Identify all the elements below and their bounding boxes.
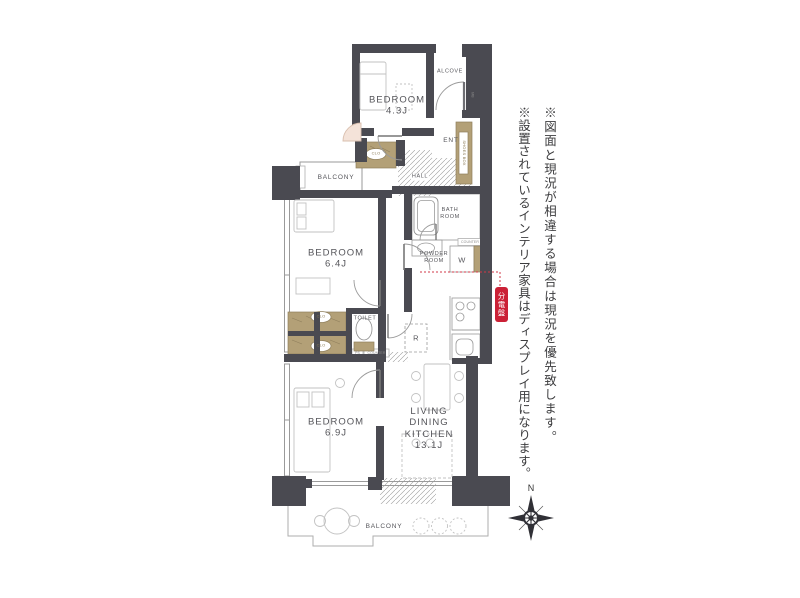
ldk-l2: DINING (405, 418, 454, 429)
bedroom-mid-name: BEDROOM (308, 248, 364, 259)
bathroom-l2: ROOM (440, 214, 460, 221)
closet-upper-label: CLO (317, 315, 326, 320)
counter-label-bottom: COUNTER (367, 351, 385, 355)
bedroom-low-name: BEDROOM (308, 417, 364, 428)
washer-label: W (458, 255, 465, 264)
closet-lower-label: CLO (317, 344, 326, 349)
powder-room-label: POWDER ROOM (420, 251, 448, 265)
compass-north-label: N (528, 483, 535, 493)
alcove-label: ALCOVE (437, 69, 463, 76)
closet-top-label: CLO (372, 152, 381, 157)
shoes-box-label: SHOES BOX (461, 140, 466, 165)
ldk-l3: KITCHEN (405, 429, 454, 440)
bedroom-top-size: 4.3J (369, 106, 425, 117)
bedroom-mid-label: BEDROOM 6.4J (308, 248, 364, 271)
balcony-bottom-label: BALCONY (366, 523, 403, 531)
bathroom-l1: BATH (440, 207, 460, 214)
bathroom-label: BATH ROOM (440, 207, 460, 221)
bedroom-top-name: BEDROOM (369, 95, 425, 106)
meter-box-label: MB (470, 92, 474, 97)
toilet-label: TOILET (354, 315, 377, 322)
disclaimer-2: ※設置されているインテリア家具はディスプレイ用になります。 (514, 106, 533, 480)
bedroom-mid-size: 6.4J (308, 259, 364, 270)
disclaimer-1: ※図面と現況が相違する場合は現況を優先致します。 (540, 106, 559, 444)
counter-label-top: COUNTER (461, 240, 479, 244)
bedroom-low-label: BEDROOM 6.9J (308, 417, 364, 440)
pipe-space-label: PS (355, 351, 360, 355)
floorplan-drawing (0, 0, 800, 598)
ldk-size: 13.1J (405, 440, 454, 451)
bedroom-low-size: 6.9J (308, 428, 364, 439)
balcony-top-label: BALCONY (318, 174, 355, 182)
bedroom-top-label: BEDROOM 4.3J (369, 95, 425, 118)
ldk-l1: LIVING (405, 406, 454, 417)
powder-l1: POWDER (420, 251, 448, 258)
hall-label: HALL (411, 174, 429, 181)
powder-l2: ROOM (420, 258, 448, 265)
ldk-label: LIVING DINING KITCHEN 13.1J (405, 406, 454, 452)
ent-label: ENT (443, 137, 458, 145)
compass-rose (508, 495, 554, 541)
fridge-label: R (413, 334, 419, 343)
floorplan-page: { "colors": { "wall": "#4a4a51", "closet… (0, 0, 800, 598)
breaker-panel-badge: 分電盤 (495, 287, 508, 322)
